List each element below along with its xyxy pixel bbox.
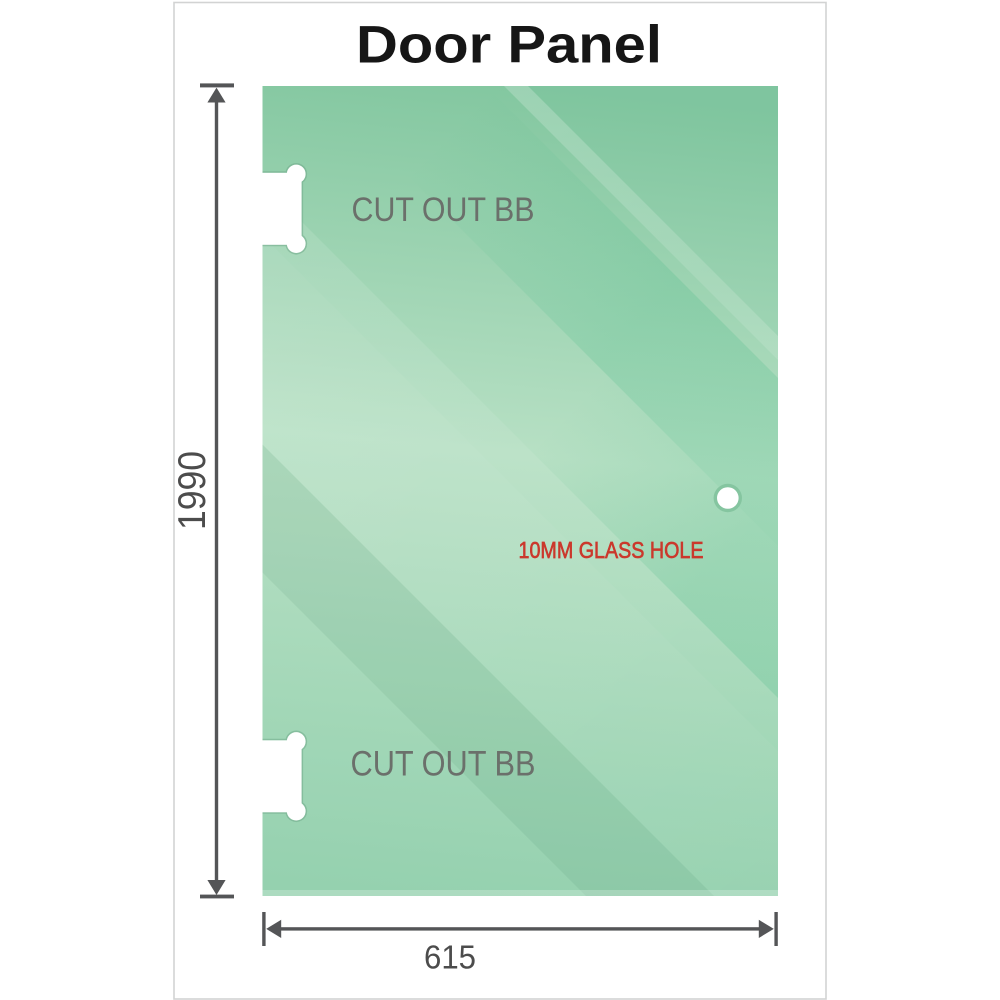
svg-text:Door Panel: Door Panel [356,16,662,75]
svg-text:CUT OUT BB: CUT OUT BB [352,191,535,229]
svg-text:1990: 1990 [171,451,214,530]
svg-text:10MM GLASS HOLE: 10MM GLASS HOLE [519,537,704,563]
svg-text:615: 615 [424,940,476,977]
svg-text:CUT OUT BB: CUT OUT BB [351,744,536,784]
